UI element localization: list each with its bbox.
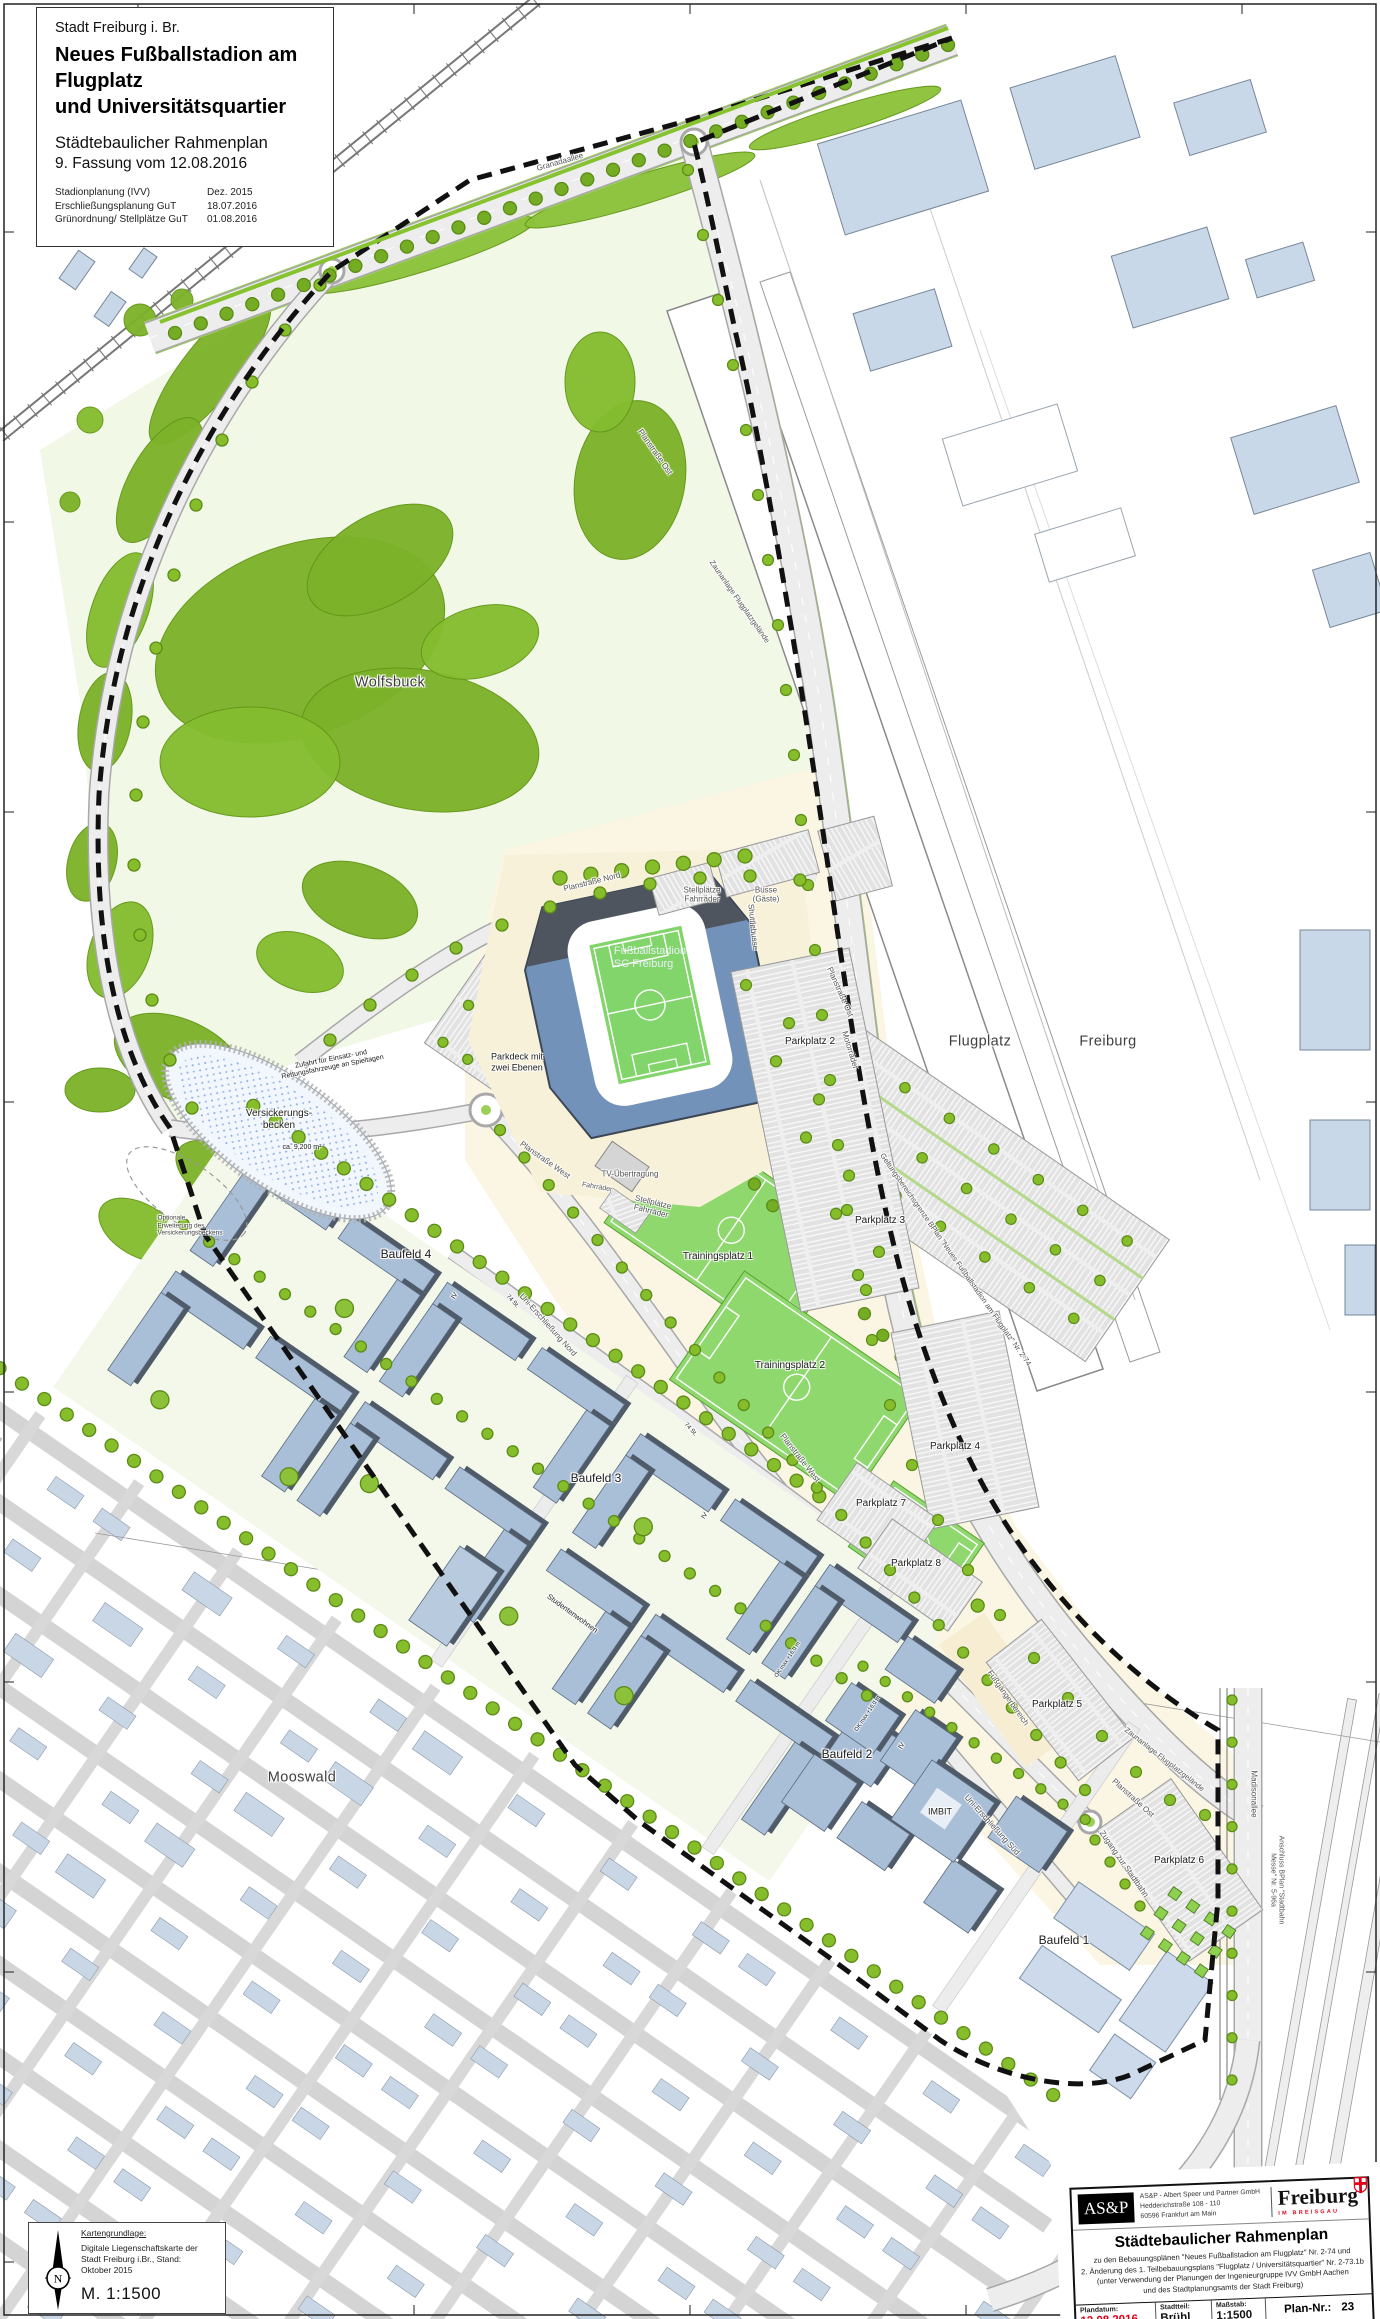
divider: [1270, 2187, 1272, 2217]
title-line1: Neues Fußballstadion am Flugplatz: [55, 42, 333, 94]
field-stadtteil: Stadtteil: Brühl: [1156, 2300, 1213, 2319]
field-plandatum: Plandatum: 12.08.2016: [1076, 2302, 1157, 2319]
revision-date: 18.07.2016: [207, 200, 257, 214]
revision-date: Dez. 2015: [207, 186, 253, 200]
title-block: Stadt Freiburg i. Br. Neues Fußballstadi…: [36, 7, 334, 247]
scale-block: N Kartengrundlage: Digitale Liegenschaft…: [28, 2222, 226, 2314]
scale-text: M. 1:1500: [81, 2283, 209, 2305]
north-arrow-icon: N: [35, 2228, 81, 2312]
stamp-block: AS&P AS&P - Albert Speer und Partner Gmb…: [1069, 2176, 1374, 2319]
svg-text:N: N: [54, 2272, 63, 2286]
asp-logo: AS&P: [1078, 2192, 1135, 2224]
plan-sheet: Wolfsbuck Flugplatz Freiburg Mooswald Gr…: [0, 0, 1380, 2319]
title-line2: und Universitätsquartier: [55, 94, 333, 120]
revision-row: Grünordnung/ Stellplätze GuT 01.08.2016: [55, 213, 333, 227]
title-subtitle1: Städtebaulicher Rahmenplan: [55, 134, 333, 153]
revision-row: Erschließungsplanung GuT 18.07.2016: [55, 200, 333, 214]
field-plan-nr: Plan-Nr.: 23: [1266, 2294, 1373, 2319]
revision-table: Stadionplanung (IVV) Dez. 2015 Erschließ…: [55, 186, 333, 227]
field-massstab: Maßstab: 1:1500: [1212, 2298, 1267, 2319]
revision-row: Stadionplanung (IVV) Dez. 2015: [55, 186, 333, 200]
kartengrundlage-heading: Kartengrundlage:: [81, 2228, 209, 2239]
revision-label: Grünordnung/ Stellplätze GuT: [55, 213, 207, 227]
rahmenplan-map: [0, 0, 1380, 2319]
asp-address: AS&P - Albert Speer und Partner GmbH Hed…: [1140, 2188, 1266, 2222]
freiburg-logo: Freiburg IM BREISGAU: [1277, 2184, 1362, 2216]
kartengrundlage-text: Digitale Liegenschaftskarte der Stadt Fr…: [81, 2243, 209, 2276]
freiburg-crest-icon: [1353, 2176, 1368, 2194]
revision-label: Erschließungsplanung GuT: [55, 200, 207, 214]
revision-date: 01.08.2016: [207, 213, 257, 227]
title-subtitle2: 9. Fassung vom 12.08.2016: [55, 155, 333, 173]
title-city: Stadt Freiburg i. Br.: [55, 20, 333, 36]
freiburg-logo-text: Freiburg: [1277, 2184, 1358, 2208]
revision-label: Stadionplanung (IVV): [55, 186, 207, 200]
